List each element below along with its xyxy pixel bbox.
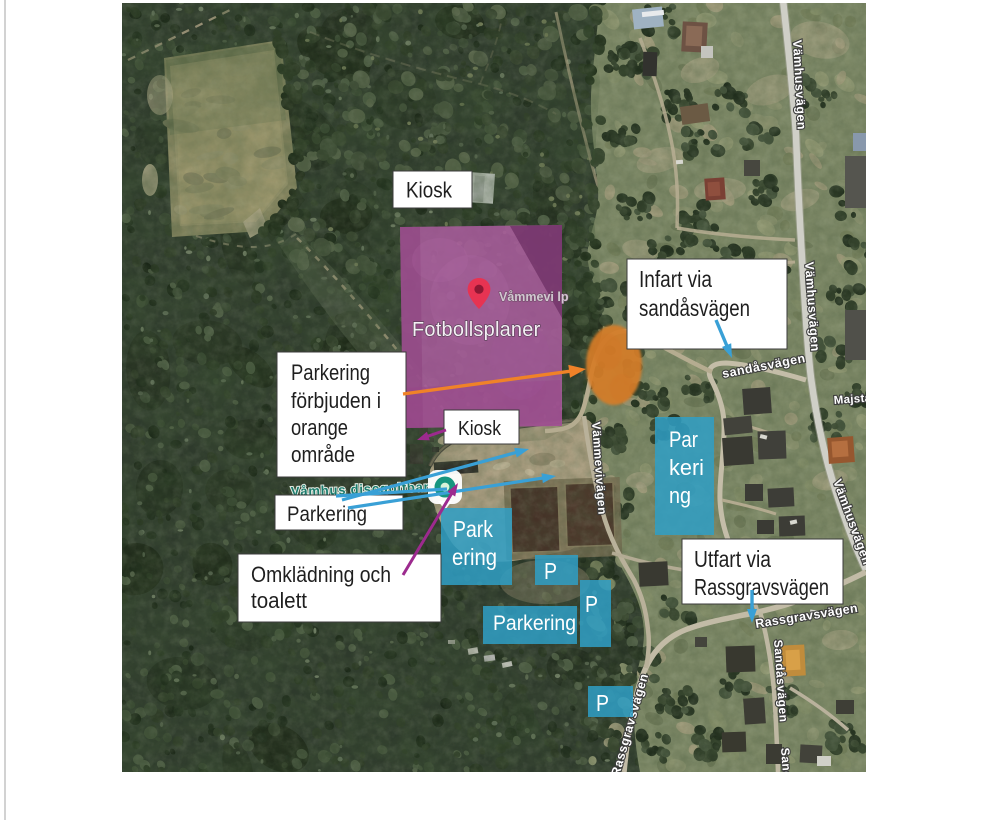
svg-text:keri: keri [669,455,704,480]
svg-text:Sand: Sand [778,747,794,772]
svg-text:Våmmevi lp: Våmmevi lp [499,290,569,304]
svg-text:Parkering: Parkering [291,360,370,385]
svg-text:Utfart via: Utfart via [694,546,771,572]
svg-text:ering: ering [452,544,497,570]
svg-text:Infart via: Infart via [639,266,712,292]
svg-text:Omklädning och: Omklädning och [251,562,391,587]
svg-text:Par: Par [669,427,698,452]
svg-text:Kiosk: Kiosk [406,178,453,203]
svg-text:förbjuden i: förbjuden i [291,388,381,413]
svg-text:Majsta: Majsta [833,392,866,407]
svg-text:P: P [596,690,609,716]
svg-text:Rassgravsvägen: Rassgravsvägen [694,574,829,600]
svg-text:P: P [585,591,598,617]
svg-text:Park: Park [453,516,493,542]
svg-text:orange: orange [291,415,348,440]
svg-text:toalett: toalett [251,588,307,613]
svg-text:sandåsvägen: sandåsvägen [639,295,750,321]
svg-text:Parkering: Parkering [493,611,576,635]
svg-text:ng: ng [669,483,691,508]
svg-text:område: område [291,442,355,467]
svg-text:P: P [544,558,557,584]
svg-text:Kiosk: Kiosk [458,418,502,440]
svg-text:Fotbollsplaner: Fotbollsplaner [412,319,541,341]
